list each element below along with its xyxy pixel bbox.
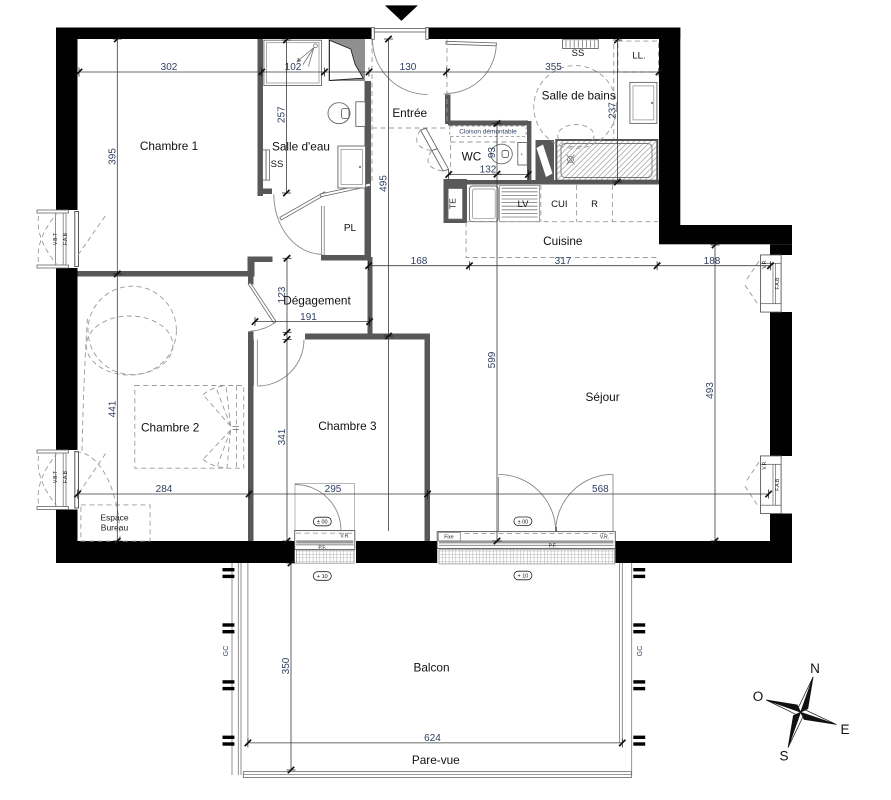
svg-text:191: 191 <box>300 312 317 323</box>
svg-text:168: 168 <box>411 256 428 267</box>
svg-text:+ 10: + 10 <box>317 574 328 580</box>
svg-text:F.A.B: F.A.B <box>63 232 69 245</box>
svg-text:V.B.T: V.B.T <box>53 233 59 245</box>
svg-text:Fixe: Fixe <box>444 535 454 541</box>
svg-text:Chambre 1: Chambre 1 <box>140 139 198 153</box>
svg-text:LV: LV <box>518 199 530 210</box>
svg-text:V.R.: V.R. <box>600 535 609 541</box>
svg-text:93: 93 <box>487 147 498 159</box>
svg-text:295: 295 <box>325 484 342 495</box>
svg-text:341: 341 <box>277 428 288 445</box>
svg-text:302: 302 <box>161 62 178 73</box>
svg-text:Cloison démontable: Cloison démontable <box>459 129 517 136</box>
svg-text:F.A.B: F.A.B <box>775 478 781 491</box>
svg-text:± 00: ± 00 <box>317 520 328 526</box>
svg-text:± 00: ± 00 <box>518 519 529 525</box>
svg-text:493: 493 <box>705 382 716 399</box>
svg-text:Cuisine: Cuisine <box>543 234 583 248</box>
svg-text:TE: TE <box>447 198 457 209</box>
svg-text:+ 10: + 10 <box>517 574 528 580</box>
svg-text:V.B.T: V.B.T <box>53 471 59 483</box>
svg-text:599: 599 <box>487 351 498 368</box>
svg-text:SS: SS <box>271 159 284 170</box>
svg-text:132: 132 <box>480 165 497 176</box>
svg-text:257: 257 <box>276 106 287 123</box>
svg-text:O: O <box>753 689 764 704</box>
svg-text:SS: SS <box>572 48 585 59</box>
svg-text:Entrée: Entrée <box>392 106 427 120</box>
svg-text:S: S <box>779 749 788 764</box>
svg-text:LL.: LL. <box>632 51 645 62</box>
svg-text:V.R.: V.R. <box>762 460 768 469</box>
svg-text:PL: PL <box>344 223 357 234</box>
svg-text:495: 495 <box>379 175 390 192</box>
svg-text:188: 188 <box>704 256 721 267</box>
svg-text:Chambre 3: Chambre 3 <box>318 419 377 433</box>
svg-text:R: R <box>591 199 598 210</box>
svg-text:130: 130 <box>400 62 417 73</box>
svg-text:P.F.: P.F. <box>549 544 557 550</box>
svg-text:237: 237 <box>607 102 618 119</box>
svg-text:E: E <box>840 722 849 737</box>
svg-text:350: 350 <box>281 657 292 674</box>
svg-text:395: 395 <box>107 148 118 165</box>
svg-text:V.R.: V.R. <box>762 259 768 268</box>
svg-text:Pare-vue: Pare-vue <box>412 753 460 767</box>
svg-text:317: 317 <box>555 256 572 267</box>
svg-text:624: 624 <box>424 733 441 744</box>
svg-text:Salle d'eau: Salle d'eau <box>272 140 330 154</box>
svg-text:284: 284 <box>156 484 173 495</box>
svg-text:441: 441 <box>107 400 118 417</box>
svg-text:Espace: Espace <box>100 512 129 522</box>
svg-text:F.A.B: F.A.B <box>775 277 781 290</box>
svg-text:Bureau: Bureau <box>101 522 129 532</box>
svg-text:Chambre 2: Chambre 2 <box>141 421 199 435</box>
svg-text:Balcon: Balcon <box>413 660 449 674</box>
svg-text:CUI: CUI <box>551 199 567 210</box>
svg-text:GC: GC <box>223 646 230 657</box>
svg-text:WC: WC <box>462 150 482 164</box>
svg-text:GC: GC <box>637 646 644 657</box>
svg-text:Salle de bains: Salle de bains <box>542 88 616 102</box>
svg-text:F.A.B: F.A.B <box>63 470 69 483</box>
svg-text:102: 102 <box>285 62 302 73</box>
svg-text:N: N <box>810 661 820 676</box>
svg-text:Séjour: Séjour <box>586 390 620 404</box>
svg-text:568: 568 <box>592 484 609 495</box>
svg-text:Dégagement: Dégagement <box>283 294 351 308</box>
svg-text:V.R.: V.R. <box>340 533 349 539</box>
svg-text:355: 355 <box>545 62 562 73</box>
